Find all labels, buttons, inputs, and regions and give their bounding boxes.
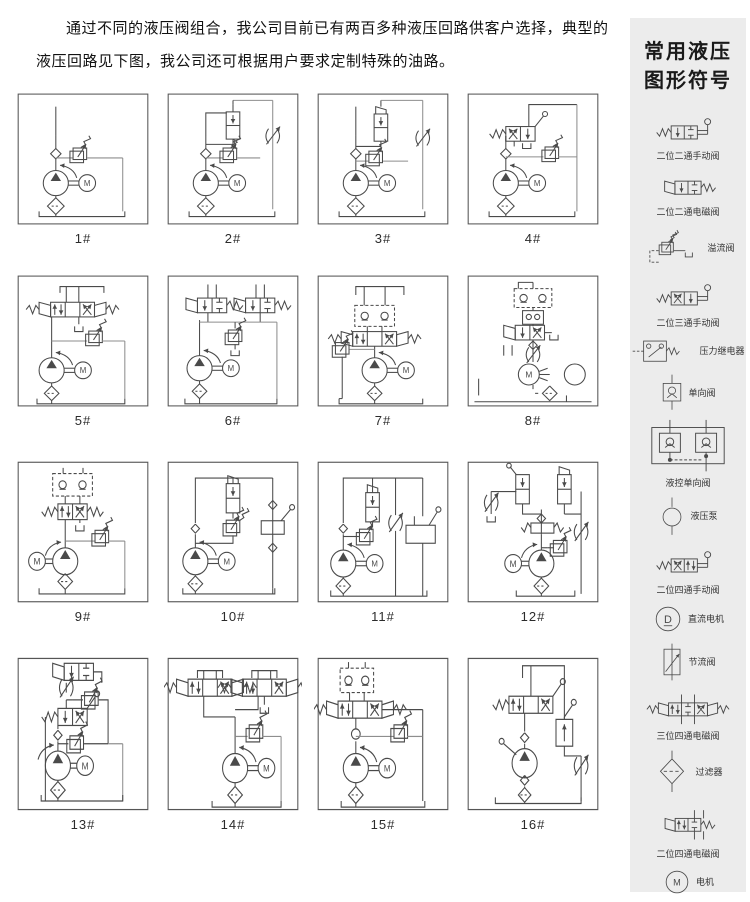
circuit-diagram-2: M <box>164 92 302 226</box>
symbol-item-8: 液压泵 <box>630 496 746 536</box>
circuit-diagram-8: M <box>464 274 602 408</box>
svg-text:M: M <box>673 877 681 887</box>
circuit-grid: M1#M2#M3#M4#M5#M6#M7#M8#MNaN9#M10#M11#M1… <box>8 92 608 834</box>
symbol-label: 三位四通电磁阀 <box>656 729 719 742</box>
symbol-label: 二位四通电磁阀 <box>656 847 719 860</box>
circuit-label: 9# <box>75 609 91 624</box>
valve-3-4-solenoid-icon <box>638 689 738 728</box>
intro-paragraph: 通过不同的液压阀组合，我公司目前已有两百多种液压回路供客户选择，典型的液压回路见… <box>36 12 618 78</box>
circuit-cell-11: M11# <box>308 460 458 656</box>
circuit-cell-4: M4# <box>458 92 608 274</box>
circuit-diagram-4: M <box>464 92 602 226</box>
circuit-label: 15# <box>371 817 396 832</box>
throttle-valve-icon <box>660 642 684 682</box>
pilot-check-valve-icon <box>648 418 728 473</box>
symbol-label: 压力继电器 <box>699 344 744 357</box>
circuit-cell-2: M2# <box>158 92 308 274</box>
symbol-item-12: 三位四通电磁阀 <box>630 689 746 743</box>
svg-text:M: M <box>263 763 270 774</box>
circuit-cell-5: M5# <box>8 274 158 460</box>
circuit-label: 8# <box>525 413 541 428</box>
svg-text:M: M <box>223 557 230 566</box>
circuit-label: 1# <box>75 231 91 246</box>
svg-text:M: M <box>384 179 391 188</box>
valve-2-3-manual-icon <box>645 276 731 313</box>
check-valve-icon <box>660 373 684 411</box>
circuit-diagram-13: M <box>14 656 152 812</box>
svg-text:M: M <box>371 559 378 568</box>
sidebar-title-line1: 常用液压 <box>644 41 732 63</box>
symbol-label: 液压泵 <box>690 509 717 522</box>
circuit-label: 6# <box>225 413 241 428</box>
symbol-item-2: 二位二通电磁阀 <box>630 169 746 218</box>
circuit-label: 10# <box>221 609 246 624</box>
symbol-item-1: 二位二通手动阀 <box>630 110 746 162</box>
circuit-label: 14# <box>221 817 246 832</box>
symbol-item-9: 二位四通手动阀 <box>630 543 746 595</box>
circuit-label: 5# <box>75 413 91 428</box>
symbol-label: 过滤器 <box>695 765 722 778</box>
circuit-cell-7: M7# <box>308 274 458 460</box>
symbol-item-3: 溢流阀 <box>630 225 746 269</box>
circuit-diagram-10: M <box>164 460 302 604</box>
symbol-label: 溢流阀 <box>707 241 734 254</box>
symbol-label: 电机 <box>696 875 714 888</box>
circuit-label: 11# <box>371 609 395 624</box>
circuit-cell-12: M12# <box>458 460 608 656</box>
circuit-cell-6: M6# <box>158 274 308 460</box>
symbol-label: 二位二通手动阀 <box>656 149 719 162</box>
motor-icon: M <box>662 867 692 897</box>
symbol-item-11: 节流阀 <box>630 642 746 682</box>
circuit-diagram-12: M <box>464 460 602 604</box>
circuit-diagram-14: M <box>164 656 302 812</box>
circuit-cell-14: M14# <box>158 656 308 834</box>
circuit-label: 7# <box>375 413 391 428</box>
circuit-diagram-11: M <box>314 460 452 604</box>
circuit-label: 3# <box>375 231 391 246</box>
circuit-cell-3: M3# <box>308 92 458 274</box>
filter-icon <box>653 749 691 794</box>
symbol-item-13: 过滤器 <box>630 749 746 794</box>
dc-motor-icon: D <box>652 603 684 635</box>
symbol-item-4: 二位三通手动阀 <box>630 276 746 328</box>
circuit-cell-13: M13# <box>8 656 158 834</box>
svg-text:M: M <box>228 364 235 373</box>
svg-text:M: M <box>525 370 532 380</box>
svg-text:M: M <box>384 763 391 774</box>
catalog-page: 通过不同的液压阀组合，我公司目前已有两百多种液压回路供客户选择，典型的液压回路见… <box>0 0 750 902</box>
valve-2-2-manual-icon <box>645 110 731 147</box>
circuit-diagram-5: M <box>14 274 152 408</box>
circuit-diagram-7: M <box>314 274 452 408</box>
svg-text:M: M <box>403 366 410 375</box>
svg-text:M: M <box>80 366 87 375</box>
sidebar-title-line2: 图形符号 <box>644 70 732 92</box>
circuit-cell-8: M8# <box>458 274 608 460</box>
svg-text:M: M <box>510 559 517 569</box>
circuit-diagram-6: M <box>164 274 302 408</box>
circuit-label: 13# <box>71 817 96 832</box>
valve-2-2-solenoid-icon <box>645 169 731 203</box>
symbol-item-5: 压力继电器 <box>630 336 746 366</box>
relief-valve-icon <box>641 225 703 269</box>
circuit-cell-1: M1# <box>8 92 158 274</box>
svg-text:M: M <box>34 556 41 566</box>
circuit-label: 2# <box>225 231 241 246</box>
circuit-cell-16: NaNNaN16# <box>458 656 608 834</box>
hydraulic-pump-icon <box>658 496 686 536</box>
symbol-item-15: M电机 <box>630 867 746 897</box>
symbol-item-6: 单向阀 <box>630 373 746 411</box>
svg-text:D: D <box>664 614 672 626</box>
pressure-relay-icon <box>631 336 695 366</box>
circuit-diagram-16: NaNNaN <box>464 656 602 812</box>
symbol-label: 单向阀 <box>688 386 715 399</box>
symbol-label: 节流阀 <box>688 655 715 668</box>
svg-text:M: M <box>534 179 541 188</box>
symbol-label: 二位二通电磁阀 <box>656 205 719 218</box>
circuit-cell-9: MNaN9# <box>8 460 158 656</box>
symbol-label: 二位四通手动阀 <box>656 583 719 596</box>
symbol-item-10: D直流电机 <box>630 603 746 635</box>
symbol-item-14: 二位四通电磁阀 <box>630 801 746 860</box>
circuit-diagram-1: M <box>14 92 152 226</box>
sidebar-title: 常用液压 图形符号 <box>630 38 746 96</box>
symbol-label: 液控单向阀 <box>665 476 710 489</box>
valve-2-4-solenoid-icon <box>644 801 732 845</box>
circuit-diagram-15: M <box>314 656 452 812</box>
sidebar-symbol-list: 二位二通手动阀二位二通电磁阀溢流阀二位三通手动阀压力继电器单向阀液控单向阀液压泵… <box>630 110 746 897</box>
svg-text:M: M <box>82 761 89 772</box>
svg-text:M: M <box>234 179 241 188</box>
circuit-label: 12# <box>521 609 546 624</box>
symbol-item-7: 液控单向阀 <box>630 418 746 488</box>
circuit-cell-10: M10# <box>158 460 308 656</box>
circuit-label: 16# <box>521 817 546 832</box>
circuit-label: 4# <box>525 231 541 246</box>
valve-2-4-manual-icon <box>644 543 732 580</box>
circuit-diagram-3: M <box>314 92 452 226</box>
symbols-sidebar: 常用液压 图形符号 二位二通手动阀二位二通电磁阀溢流阀二位三通手动阀压力继电器单… <box>630 18 746 892</box>
svg-text:M: M <box>84 179 91 188</box>
circuit-cell-15: M15# <box>308 656 458 834</box>
symbol-label: 直流电机 <box>688 612 724 625</box>
symbol-label: 二位三通手动阀 <box>656 316 719 329</box>
circuit-diagram-9: MNaN <box>14 460 152 604</box>
